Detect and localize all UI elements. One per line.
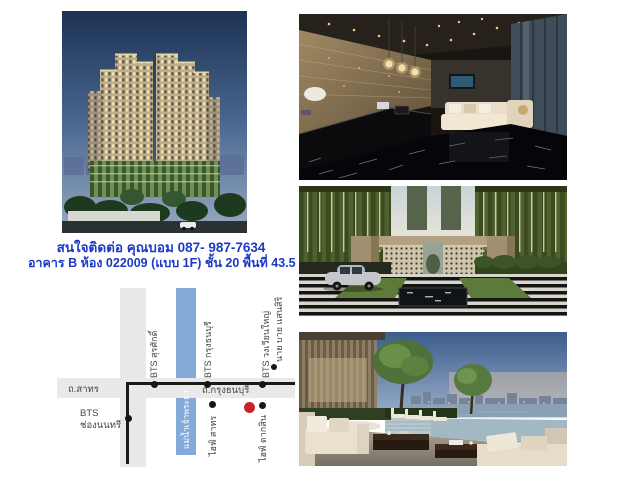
contact-phone-line: สนใจติดต่อ คุณบอม 087- 987-7634 [28,240,294,256]
bts-line-vertical [126,382,129,464]
label-hive-taksin: ไฮฟ์ ตากสิน [258,415,269,462]
contact-block: สนใจติดต่อ คุณบอม 087- 987-7634 อาคาร B … [28,240,294,271]
label-bts-surasak: BTS สุรศักดิ์ [149,331,160,378]
label-river: แม่น้ำเจ้าพระยา [181,390,192,449]
building-render-photo [62,11,247,233]
label-bts-chongnonsi: BTS ช่องนนทรี [80,408,121,431]
pendant-lamps [383,18,421,78]
station-dot-surasak [151,381,158,388]
lobby-interior-photo [299,14,567,180]
water-feature [399,288,467,306]
cream-sofa [441,100,533,130]
contact-unit-line: อาคาร B ห้อง 022009 (แบบ 1F) ชั้น 20 พื้… [28,256,294,271]
road [62,221,247,233]
pool-terrace-photo [299,332,567,466]
label-nye-sansiri: นาย บาย แสนสิริ [274,297,285,362]
label-bts-krungthonburi: BTS กรุงธนบุรี [203,321,214,378]
label-bts-wongwianyai: BTS วงเวียนใหญ่ [261,311,272,378]
project-location-marker [244,402,255,413]
landmark-dot-hive-sathorn [209,401,216,408]
label-road-krungthonburi: ถ.กรุงธนบุรี [202,385,249,397]
station-dot-chongnonsi [125,415,132,422]
label-hive-sathorn: ไฮฟ์ สาทร [208,416,219,456]
label-road-sathorn: ถ.สาทร [68,384,99,396]
podium [90,161,220,197]
station-dot-wongwianyai [259,381,266,388]
landmark-dot-hive-taksin [259,402,266,409]
entrance-courtyard-photo [299,186,567,316]
site-wall [68,211,160,222]
tv-screen [449,74,475,89]
